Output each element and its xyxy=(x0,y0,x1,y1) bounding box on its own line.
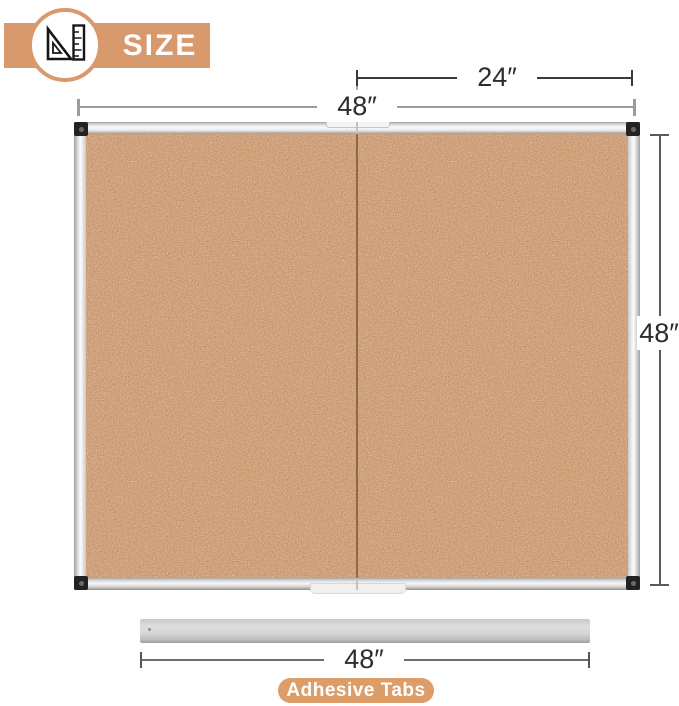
dim-tick xyxy=(356,70,358,86)
dim-cap xyxy=(650,134,669,136)
dim-label-24in: 24″ xyxy=(457,61,537,93)
dim-cap xyxy=(650,584,669,586)
adhesive-tab-bar xyxy=(140,619,590,643)
adhesive-tabs-badge: Adhesive Tabs xyxy=(278,678,434,703)
dim-tick xyxy=(140,652,142,668)
frame-left xyxy=(74,122,86,590)
dim-label-48in-bottom: 48″ xyxy=(324,643,404,675)
fold-seam xyxy=(356,134,358,578)
corner-cap-bottom-left xyxy=(74,576,88,590)
product-size-diagram: SIZE 24″ 48″ 48″ xyxy=(0,0,679,706)
corner-cap-bottom-right xyxy=(626,576,640,590)
dim-tick xyxy=(631,70,633,86)
dim-tick xyxy=(633,99,636,116)
mounting-clip-bottom xyxy=(310,583,406,594)
dim-label-48in-top: 48″ xyxy=(317,90,397,122)
set-square-ruler-icon xyxy=(42,20,88,71)
dim-line xyxy=(659,135,661,585)
section-title: SIZE xyxy=(110,25,210,66)
frame-right xyxy=(628,122,640,590)
corner-cap-top-left xyxy=(74,122,88,136)
frame-seam-bottom xyxy=(356,578,358,590)
dim-tick xyxy=(77,99,80,116)
dim-tick xyxy=(588,652,590,668)
tab-bar-screw-dot xyxy=(148,628,151,631)
ruler-icon-circle xyxy=(28,8,102,82)
cork-board xyxy=(74,122,640,590)
corner-cap-top-right xyxy=(626,122,640,136)
frame-seam-top xyxy=(356,122,358,134)
dim-label-48in-height: 48″ xyxy=(637,316,679,350)
